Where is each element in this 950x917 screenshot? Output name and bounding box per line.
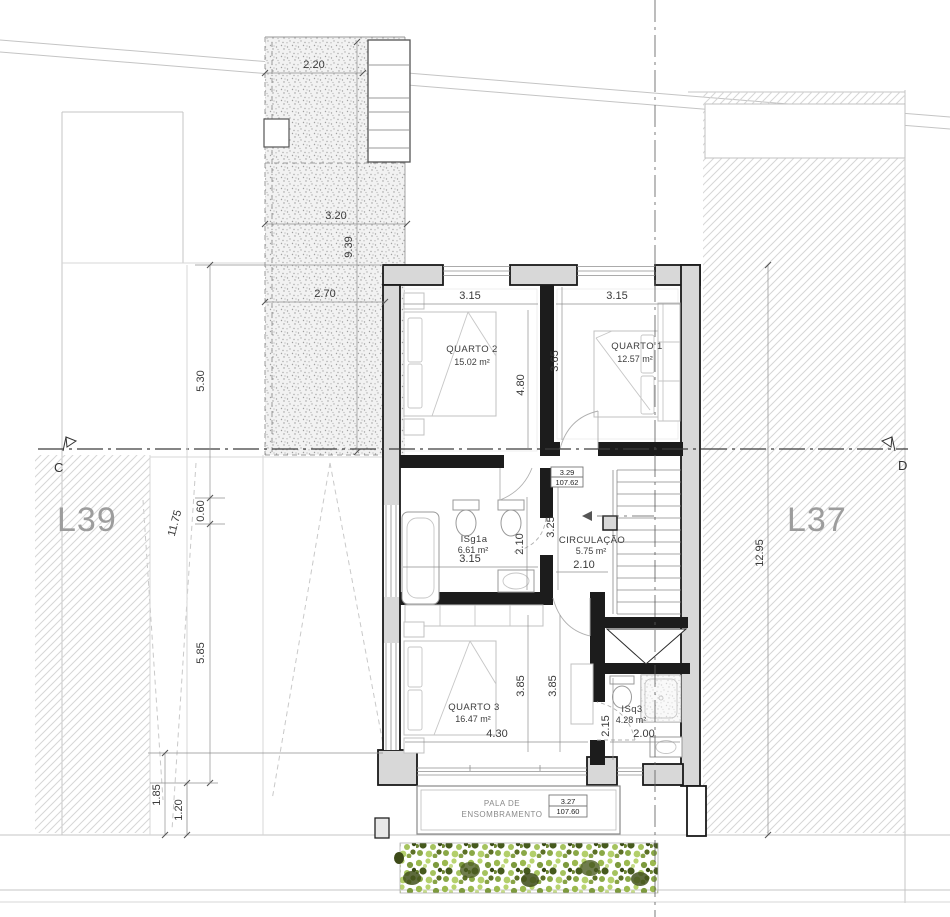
- room-label-circulacao: CIRCULAÇÃO: [559, 535, 625, 546]
- dim-left-bottom-outer: 1.85: [151, 784, 163, 805]
- dim-left-bottom-inner: 1.20: [173, 799, 185, 820]
- window-bottom-isq3: [617, 768, 643, 775]
- level-pala-height: 3.27: [561, 797, 576, 806]
- room-label-quarto3: QUARTO 3: [448, 702, 499, 713]
- stair-void-triangle: [607, 629, 686, 664]
- stair-newel: [603, 516, 617, 530]
- exterior-stair-ladder: [368, 40, 410, 162]
- door-quarto3: [553, 598, 590, 636]
- dim-q3-depth-a: 3.85: [515, 675, 527, 696]
- dim-right-total: 12.95: [754, 539, 766, 567]
- floor-plan-page: 3.29 107.62 3.27 107.60 L39 L37 C D QUAR…: [0, 0, 950, 917]
- toilet: [453, 500, 479, 536]
- dim-q1-depth: 3.65: [549, 350, 561, 371]
- room-area-isq3: 4.28 m²: [616, 715, 647, 725]
- dim-patio-top: 2.20: [303, 59, 324, 71]
- washbasin: [498, 570, 534, 592]
- dim-q3-depth-b: 3.85: [547, 675, 559, 696]
- dim-q1-width: 3.15: [606, 290, 627, 302]
- room-label-quarto1: QUARTO 1: [611, 341, 662, 352]
- dim-circ-depth: 3.25: [545, 516, 557, 537]
- window-quarto3-side: [384, 643, 399, 750]
- stair-direction-arrow: [582, 511, 592, 521]
- dim-left-upper: 5.30: [195, 370, 207, 391]
- dim-isq3-depth: 2.15: [600, 715, 612, 736]
- furniture-quarto1: [557, 289, 680, 439]
- canopy-label-1: PALA DE: [484, 799, 520, 808]
- room-label-isg1a: ISg1a: [461, 534, 488, 545]
- dim-circ-width: 2.10: [573, 559, 594, 571]
- desk-quarto3: [571, 664, 593, 724]
- hedge: [394, 843, 658, 893]
- wardrobe-quarto3: [405, 605, 543, 626]
- window-top-left: [443, 267, 510, 276]
- room-area-quarto1: 12.57 m²: [617, 354, 653, 364]
- boundary-post: [375, 818, 389, 838]
- dim-left-small: 0.60: [195, 500, 207, 521]
- dim-patio-mid: 3.20: [325, 210, 346, 222]
- floor-plan-canvas: 3.29 107.62 3.27 107.60 L39 L37 C D QUAR…: [0, 0, 950, 917]
- room-area-circulacao: 5.75 m²: [576, 546, 607, 556]
- door-bath: [500, 468, 532, 500]
- dim-q2-width: 3.15: [459, 290, 480, 302]
- room-area-quarto2: 15.02 m²: [454, 357, 490, 367]
- level-pala-elevation: 107.60: [557, 807, 580, 816]
- section-letter-d: D: [898, 458, 907, 473]
- planter-box: [264, 119, 289, 147]
- dim-bath-width: 3.15: [459, 553, 480, 565]
- room-label-isq3: ISq3: [621, 704, 642, 715]
- level-box-circulation: 3.29 107.62: [551, 467, 583, 487]
- level-circ-elevation: 107.62: [556, 478, 579, 487]
- dim-left-lower: 5.85: [195, 642, 207, 663]
- room-area-quarto3: 16.47 m²: [455, 714, 491, 724]
- lot-label-l39: L39: [57, 501, 117, 539]
- bidet: [498, 500, 524, 536]
- dim-left-total: 11.75: [166, 509, 185, 538]
- level-box-pala: 3.27 107.60: [549, 795, 587, 817]
- party-wall-end: [687, 786, 706, 836]
- party-wall: [681, 265, 700, 786]
- section-letter-c: C: [54, 460, 63, 475]
- dim-patio-bottom: 2.70: [314, 288, 335, 300]
- canopy-label-2: ENSOMBRAMENTO: [461, 810, 542, 819]
- wardrobe-quarto1: [658, 303, 680, 421]
- level-circ-height: 3.29: [560, 468, 575, 477]
- furniture-quarto2: [404, 289, 537, 451]
- dim-q3-width: 4.30: [486, 728, 507, 740]
- room-label-quarto2: QUARTO 2: [446, 344, 497, 355]
- lot-label-l37: L37: [787, 501, 847, 539]
- hedge-end-blob: [394, 852, 404, 864]
- dim-bath-depth: 2.10: [514, 533, 526, 554]
- dim-q2-depth: 4.80: [515, 374, 527, 395]
- neighbour-roof: [705, 104, 905, 158]
- door-quarto1: [560, 411, 598, 449]
- dim-patio-length: 9.39: [343, 236, 355, 257]
- window-top-right: [577, 267, 655, 276]
- dim-isq3-width: 2.00: [633, 728, 654, 740]
- window-bath: [384, 505, 399, 597]
- lot-hatch-right: [703, 92, 905, 833]
- shower: [641, 675, 681, 722]
- window-bottom-main: [417, 765, 587, 775]
